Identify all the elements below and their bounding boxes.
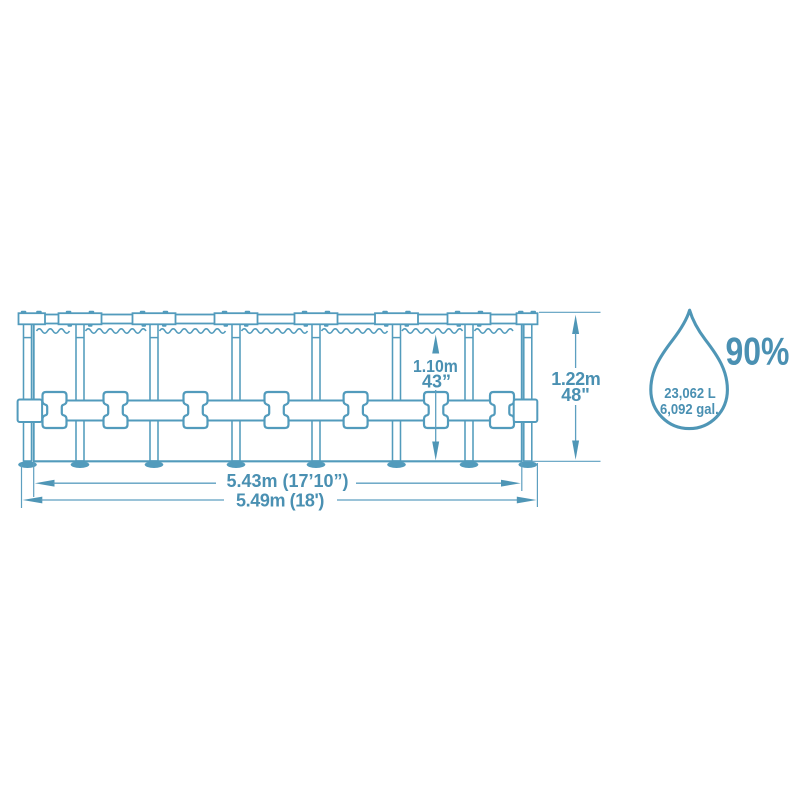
svg-text:48": 48" <box>561 385 590 405</box>
svg-text:5.49m (18'): 5.49m (18') <box>236 490 324 510</box>
svg-text:43”: 43” <box>422 372 451 392</box>
svg-text:5.43m (17’10”): 5.43m (17’10”) <box>226 471 348 491</box>
svg-text:90%: 90% <box>726 331 790 373</box>
svg-text:6,092 gal.: 6,092 gal. <box>660 400 719 417</box>
svg-text:23,062 L: 23,062 L <box>664 384 716 401</box>
